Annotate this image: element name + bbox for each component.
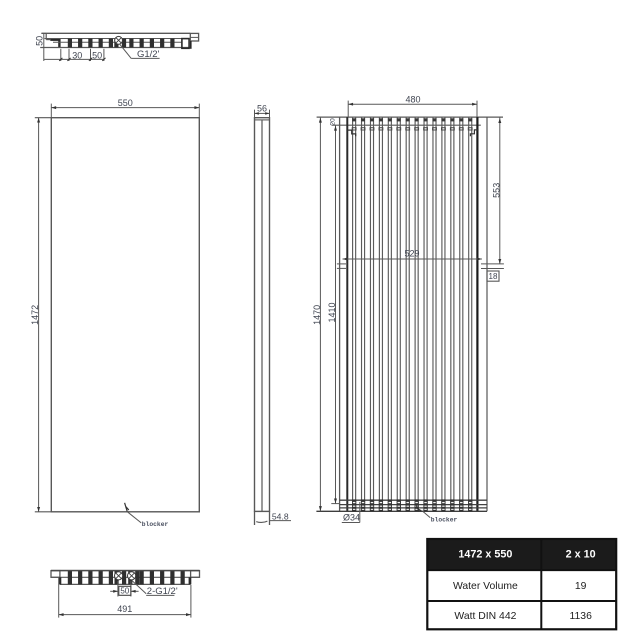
svg-text:529: 529 (404, 248, 419, 258)
svg-text:2-G1/2': 2-G1/2' (147, 586, 178, 597)
svg-text:1472 x 550: 1472 x 550 (458, 548, 512, 560)
svg-text:54.8: 54.8 (272, 512, 289, 522)
svg-text:30: 30 (72, 50, 82, 60)
svg-text:Water Volume: Water Volume (453, 581, 518, 592)
svg-text:553: 553 (491, 183, 501, 198)
svg-text:1136: 1136 (570, 611, 593, 622)
svg-text:56: 56 (257, 104, 267, 114)
svg-text:20: 20 (330, 118, 337, 126)
svg-text:480: 480 (405, 95, 420, 105)
svg-text:550: 550 (118, 98, 133, 108)
svg-text:blocker: blocker (142, 521, 169, 528)
svg-text:18: 18 (489, 272, 498, 281)
svg-text:491: 491 (117, 604, 132, 614)
svg-text:50: 50 (120, 587, 129, 596)
svg-text:19: 19 (575, 581, 587, 592)
svg-text:G1/2': G1/2' (137, 49, 160, 60)
svg-text:Ø34: Ø34 (343, 513, 360, 523)
svg-text:1470: 1470 (312, 305, 322, 325)
svg-text:50: 50 (35, 36, 45, 46)
svg-text:50: 50 (92, 50, 102, 60)
svg-text:1410: 1410 (327, 302, 337, 322)
svg-text:2 x 10: 2 x 10 (566, 548, 596, 560)
svg-text:Watt DIN 442: Watt DIN 442 (454, 611, 516, 622)
svg-text:blocker: blocker (431, 516, 458, 523)
svg-text:1472: 1472 (30, 305, 40, 325)
